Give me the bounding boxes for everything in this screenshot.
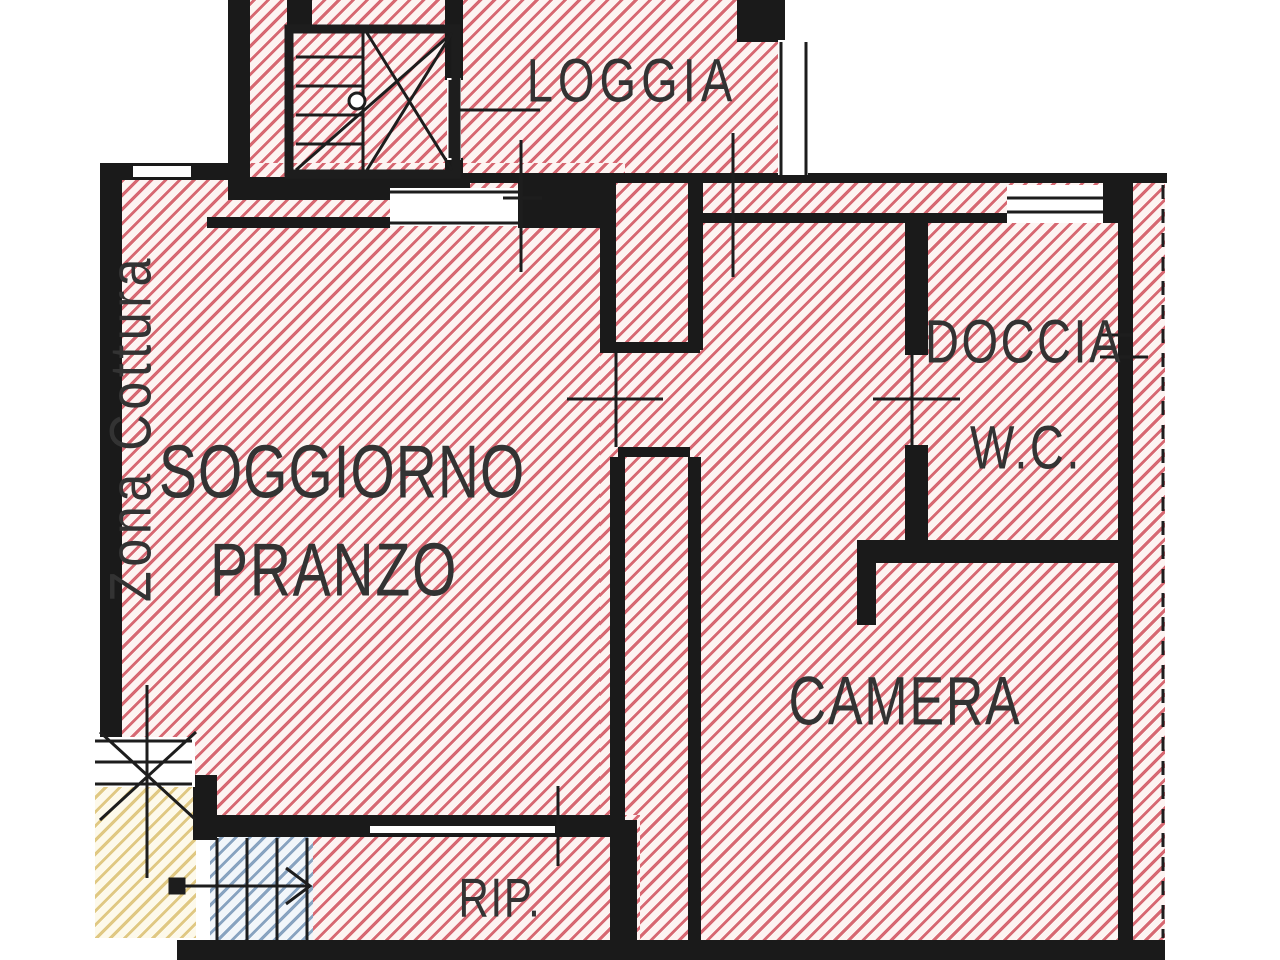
bottom-outer-wall <box>177 940 1165 960</box>
exterior-landing-hatch <box>95 786 196 938</box>
room-label-rip: RIP. <box>459 866 542 930</box>
mid-wall-upper-left-bar <box>600 183 616 353</box>
right-outer-wall <box>1118 183 1133 943</box>
stairwell-left-wall <box>228 0 250 178</box>
room-label-pranzo: PRANZO <box>210 527 458 613</box>
ripostiglio-wall-slit <box>370 826 555 833</box>
entry-stairs-hatch <box>210 837 313 943</box>
stairwell-top-wall-stub <box>287 0 312 28</box>
doccia-top-window-band <box>1007 185 1103 223</box>
loggia-soggiorno-pier <box>518 183 608 228</box>
southwest-window-band <box>95 737 195 787</box>
soggiorno-loggia-window-band <box>390 188 518 226</box>
north-wall-inner-line <box>703 213 1007 223</box>
room-label-camera: CAMERA <box>789 663 1022 741</box>
southwest-corner-wall <box>193 775 217 840</box>
doccia-bottom-wall-stub <box>857 540 876 625</box>
mid-wall-door-cap-lower <box>618 447 690 457</box>
loggia-corner-pillar <box>737 0 785 42</box>
room-label-soggiorno: SOGGIORNO <box>159 429 525 515</box>
room-label-loggia: LOGGIA <box>527 44 738 116</box>
doccia-bottom-wall <box>870 540 1133 563</box>
soggiorno-inner-top-line <box>207 217 390 228</box>
room-label-zona-cottura: Zona Cottura <box>96 254 164 602</box>
floor-plan: LOGGIA SOGGIORNO PRANZO Zona Cottura CAM… <box>0 0 1280 960</box>
mid-wall-door-cap-upper <box>616 342 700 353</box>
ripostiglio-right-wall <box>610 820 637 943</box>
mid-wall-upper-right-bar <box>688 183 703 350</box>
loggia-parapet-band <box>778 40 808 175</box>
stairwell-right-wall-upper <box>445 0 463 80</box>
stairwell-right-window-band <box>447 78 461 160</box>
mid-wall-lower-right-line <box>688 457 701 943</box>
left-wall-notch <box>133 166 191 177</box>
room-label-wc: W.C. <box>970 411 1082 483</box>
room-label-doccia: DOCCIA <box>925 305 1123 377</box>
